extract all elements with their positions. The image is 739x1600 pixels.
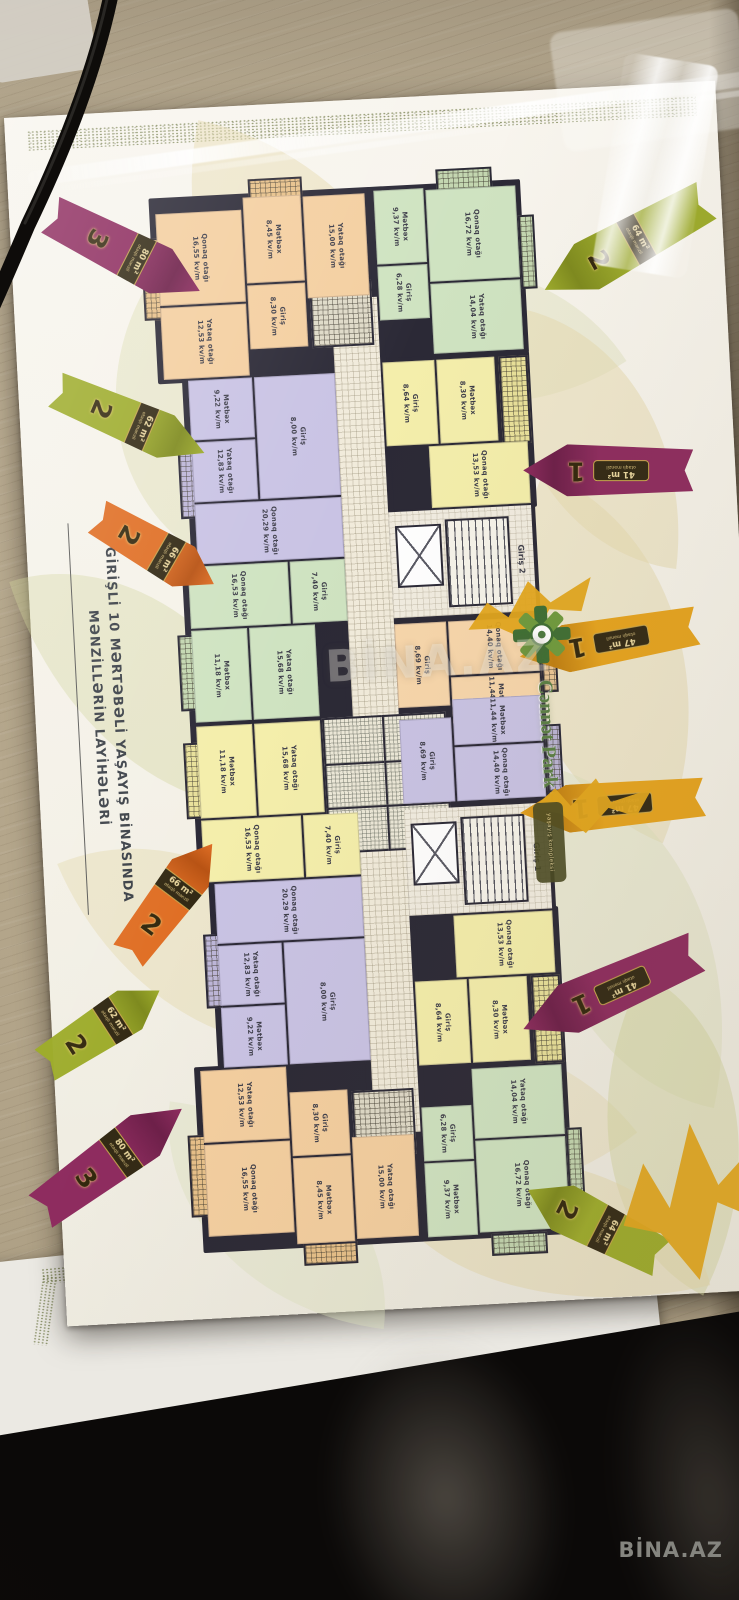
room-count-digit: 3 <box>70 1164 102 1194</box>
room-name: Giriş <box>319 1103 330 1143</box>
room-name: Qonaq otağı <box>251 824 263 873</box>
room-count-digit: 2 <box>551 1196 582 1224</box>
room: Yataq otağı12,53 kv/m <box>200 1067 290 1143</box>
room-label: Mətbəx8,45 kv/m <box>314 1180 334 1220</box>
room-label: Qonaq otağı16,72 kv/m <box>512 1159 533 1209</box>
shadow-blob <box>300 1315 591 1600</box>
room: Mətbəx11,18 kv/m <box>191 628 252 723</box>
room: Yataq otağı12,83 kv/m <box>191 439 258 502</box>
room-name: Mətbəx <box>466 380 477 420</box>
room-name: Mətbəx <box>399 206 410 246</box>
room: Mətbəx8,45 kv/m <box>293 1155 355 1244</box>
room: Yataq otağı14,04 kv/m <box>430 279 524 354</box>
room-label: Giriş8,00 kv/m <box>287 416 307 456</box>
balcony-hatch <box>303 1241 358 1266</box>
room: Yataq otağı12,83 kv/m <box>218 943 285 1006</box>
room-label: Mətbəx9,37 kv/m <box>441 1179 461 1219</box>
elevator-shaft <box>410 821 459 885</box>
room-label: Yataq otağı12,83 kv/m <box>214 448 235 495</box>
room-label: Giriş6,28 kv/m <box>438 1113 458 1153</box>
room-count-digit: 2 <box>85 396 116 423</box>
balcony-hatch <box>518 214 538 289</box>
room: Yataq otağı15,68 kv/m <box>254 720 325 815</box>
room-name: Qonaq otağı <box>238 570 250 619</box>
area-value: 41 m² <box>597 468 645 477</box>
room-label: Mətbəx11,18 kv/m <box>211 653 232 698</box>
stair-core: Giriş 2 <box>388 505 536 618</box>
room-label: Qonaq otağı16,53 kv/m <box>242 824 263 874</box>
room-count-digit: 2 <box>60 1030 92 1059</box>
room: Yataq otağı12,53 kv/m <box>160 304 250 380</box>
room-label: Qonaq otağı16,53 kv/m <box>229 570 250 620</box>
room: Giriş7,40 kv/m <box>303 812 361 877</box>
document-title: 2 GİRİŞLİ 10 MƏRTƏBƏLİ YAŞAYIŞ BİNASINDA… <box>50 526 156 910</box>
room-label: Yataq otağı14,04 kv/m <box>467 293 488 340</box>
room-area: 7,40 kv/m <box>308 571 319 611</box>
room: Mətbəx8,30 kv/m <box>469 976 531 1063</box>
room: Giriş8,00 kv/m <box>284 938 371 1064</box>
room-label: Mətbəx8,30 kv/m <box>457 380 477 420</box>
room-name: Mətbəx <box>220 389 231 429</box>
balcony-hatch <box>491 1231 548 1256</box>
room-name: Mətbəx <box>499 999 510 1039</box>
room-label: Yataq otağı12,83 kv/m <box>241 951 262 998</box>
room: Yataq otağı15,00 kv/m <box>352 1134 419 1239</box>
room: Mətbəx9,37 kv/m <box>424 1161 478 1238</box>
area-note: otaqlı mənzil <box>597 463 645 469</box>
room-label: Giriş8,69 kv/m <box>417 741 437 781</box>
room-area: 11,18 kv/m <box>216 749 227 794</box>
room: Giriş8,30 kv/m <box>247 282 308 349</box>
balcony-hatch <box>498 355 532 444</box>
room-label: Giriş7,40 kv/m <box>322 825 342 865</box>
bathroom-cell <box>324 761 388 810</box>
room-label: Giriş8,64 kv/m <box>400 383 420 423</box>
room: Giriş8,64 kv/m <box>415 979 471 1066</box>
room: Qonaq otağı20,29 kv/m <box>194 497 344 565</box>
staircase <box>445 516 514 607</box>
room-count-digit: 1 <box>568 988 595 1019</box>
room-label: Mətbəx8,30 kv/m <box>490 999 510 1039</box>
room-label: Qonaq otağı13,53 kv/m <box>494 919 515 969</box>
room: Yataq otağı15,00 kv/m <box>303 193 370 298</box>
room-label: Giriş8,00 kv/m <box>317 981 337 1021</box>
room: Mətbəx11,18 kv/m <box>196 724 257 819</box>
room-label: Giriş8,30 kv/m <box>268 296 288 336</box>
room-name: Mətbəx <box>253 1016 264 1056</box>
room-label: Giriş8,30 kv/m <box>310 1103 330 1143</box>
room-label: Yataq otağı12,53 kv/m <box>195 318 216 365</box>
room-count-digit: 2 <box>136 909 166 941</box>
room-label: Mətbəx9,22 kv/m <box>244 1016 264 1056</box>
photo-of-floor-plan-document: 2 GİRİŞLİ 10 MƏRTƏBƏLİ YAŞAYIŞ BİNASINDA… <box>0 0 739 1600</box>
room: Qonaq otağı13,53 kv/m <box>453 910 555 977</box>
room-count-digit: 1 <box>568 457 586 483</box>
room-name: Qonaq otağı <box>199 233 211 282</box>
room: Giriş8,30 kv/m <box>289 1089 350 1156</box>
room-label: Qonaq otağı20,29 kv/m <box>279 885 300 935</box>
area-badge: 62 m²otaqlı mənzil <box>89 992 137 1050</box>
room-label: Mətbəx9,22 kv/m <box>211 389 231 429</box>
room: Giriş6,28 kv/m <box>377 264 430 321</box>
room-label: Yataq otağı15,00 kv/m <box>375 1163 396 1210</box>
room: Giriş8,69 kv/m <box>399 717 455 804</box>
room-name: Giriş <box>409 383 420 423</box>
room-name: Giriş <box>426 741 437 781</box>
room-label: Mətbəx11,18 kv/m <box>216 749 237 794</box>
area-badge: 47 m²otaqlı mənzil <box>592 624 651 654</box>
bina-az-corner-watermark: BİNA.AZ <box>619 1538 724 1562</box>
room-name: Qonaq otağı <box>248 1164 260 1213</box>
room-area: 7,40 kv/m <box>322 825 333 865</box>
room-name: Mətbəx <box>273 219 284 259</box>
room-label: Qonaq otağı16,55 kv/m <box>190 233 211 283</box>
room-label: Yataq otağı15,68 kv/m <box>279 745 300 792</box>
room: Giriş7,40 kv/m <box>290 559 348 624</box>
room-name: Mətbəx <box>323 1180 334 1220</box>
room: Yataq otağı14,04 kv/m <box>471 1064 565 1139</box>
room-name: Giriş <box>447 1113 458 1153</box>
room-label: Qonaq otağı13,53 kv/m <box>469 450 490 500</box>
room: Giriş6,28 kv/m <box>421 1105 474 1162</box>
cennet-park-logo-text: Cənnət Park <box>496 666 599 801</box>
room-label: Qonaq otağı16,55 kv/m <box>239 1164 260 1214</box>
room: Mətbəx9,22 kv/m <box>188 377 255 440</box>
foliage-border-pattern <box>32 1275 58 1347</box>
area-badge: 41 m²otaqlı mənzil <box>592 964 652 1006</box>
room-count-digit: 3 <box>81 225 112 253</box>
room-label: Giriş8,64 kv/m <box>433 1002 453 1042</box>
room: Mətbəx8,45 kv/m <box>242 195 304 284</box>
room-label: Mətbəx9,37 kv/m <box>390 206 410 246</box>
room-name: Giriş <box>442 1002 453 1042</box>
room: Qonaq otağı16,72 kv/m <box>425 185 520 282</box>
room-name: Qonaq otağı <box>471 209 483 258</box>
room: Qonaq otağı13,53 kv/m <box>429 441 531 508</box>
room-area: 8,00 kv/m <box>287 416 298 456</box>
room: Giriş8,00 kv/m <box>254 373 341 499</box>
room: Giriş8,64 kv/m <box>382 360 438 447</box>
bathroom-cell <box>322 715 386 766</box>
room-name: Giriş <box>277 296 288 336</box>
room: Qonaq otağı16,55 kv/m <box>204 1140 295 1236</box>
cennet-park-logo-tagline: yaşayış kompleksi <box>533 802 567 883</box>
area-badge: 80 m²otaqlı mənzil <box>96 1124 146 1182</box>
room-label: Qonaq otağı20,29 kv/m <box>259 506 280 556</box>
room-area: 11,18 kv/m <box>211 653 222 698</box>
room-count-digit: 2 <box>112 520 144 549</box>
room: Mətbəx9,22 kv/m <box>221 1005 288 1068</box>
staircase <box>460 814 529 905</box>
area-badge: 41 m²otaqlı mənzil <box>593 460 649 481</box>
room-name: Qonaq otağı <box>521 1159 533 1208</box>
room-name: Mətbəx <box>450 1179 461 1219</box>
stair-core: Giriş 1 <box>404 803 552 916</box>
room-label: Giriş7,40 kv/m <box>308 571 328 611</box>
room-name: Giriş <box>403 272 414 312</box>
room-label: Yataq otağı15,00 kv/m <box>326 222 347 269</box>
elevator-shaft <box>395 524 444 588</box>
room-label: Giriş6,28 kv/m <box>393 272 413 312</box>
room-area: 8,00 kv/m <box>317 982 328 1022</box>
room: Mətbəx9,37 kv/m <box>373 188 427 265</box>
room-label: Yataq otağı14,04 kv/m <box>508 1078 529 1125</box>
room: Qonaq otağı20,29 kv/m <box>214 876 364 944</box>
room: Mətbəx8,30 kv/m <box>436 357 498 444</box>
room: Qonaq otağı16,53 kv/m <box>201 815 304 882</box>
room-label: Mətbəx8,45 kv/m <box>264 219 284 259</box>
room-label: Qonaq otağı16,72 kv/m <box>462 209 483 259</box>
room-label: Yataq otağı12,53 kv/m <box>235 1081 256 1128</box>
